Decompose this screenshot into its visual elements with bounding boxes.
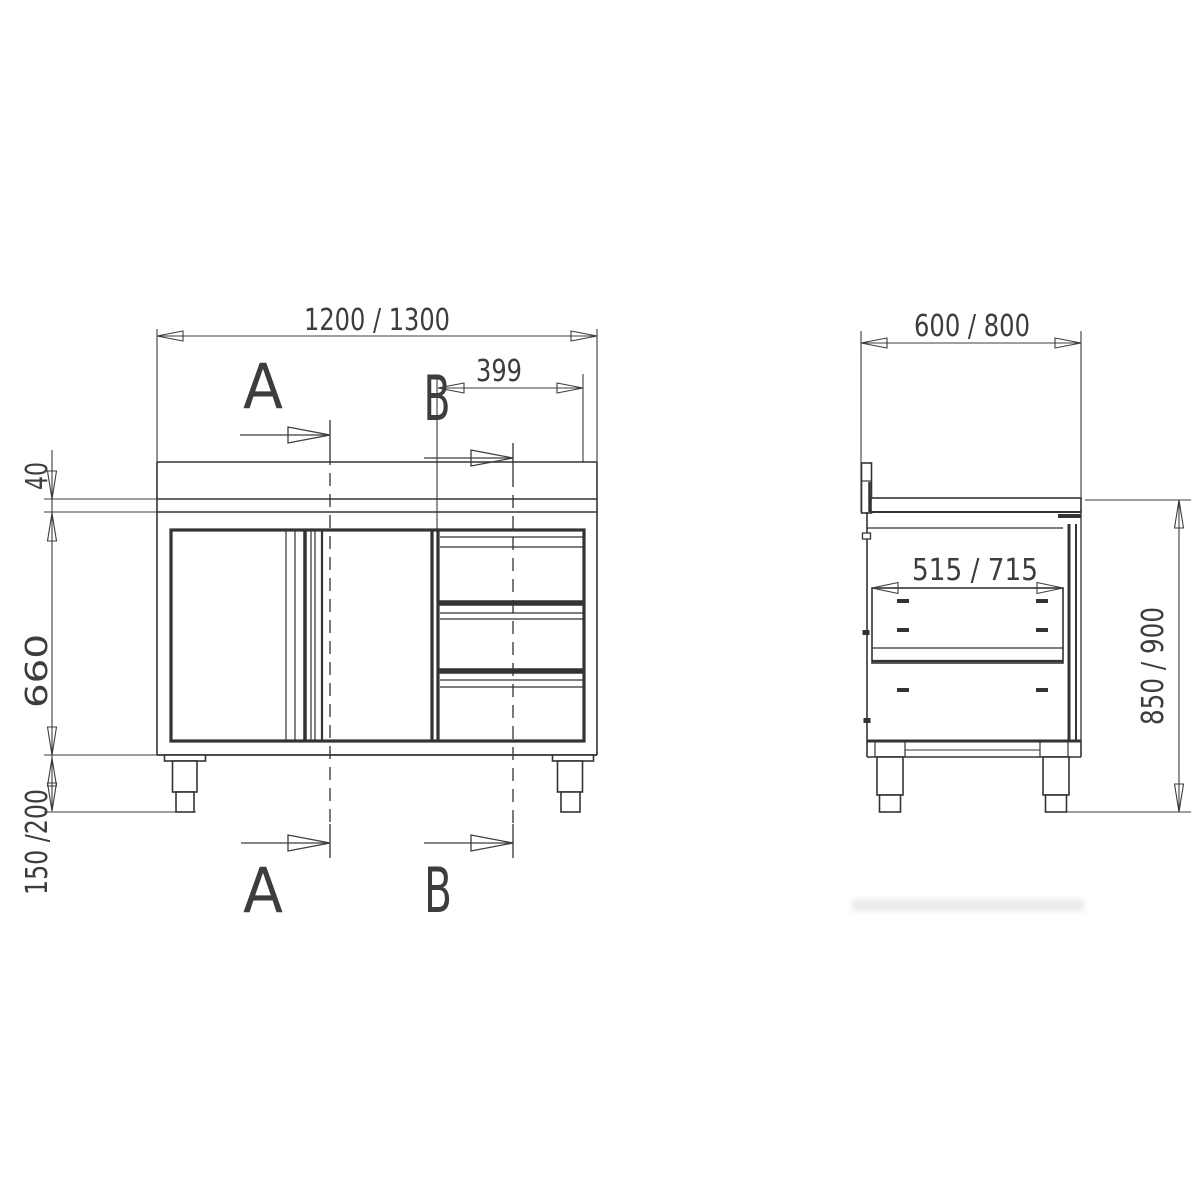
side-drawer-box [872,588,1063,663]
front-leg-left [165,755,206,812]
dim-label-drawer-width: 399 [476,354,522,389]
leg-upper [1043,757,1069,795]
drawer-3 [440,680,583,687]
base-frame [867,741,1081,757]
leg-upper [558,761,583,792]
drawer-2 [440,613,583,619]
hinge-mark [864,718,871,723]
dim-label-overall-height: 850 / 900 [1136,607,1171,725]
section-label-a: A [243,854,283,927]
side-leg-left [877,757,903,812]
leg-foot [176,792,194,812]
cabinet-side-body: 515 / 715 [861,463,1081,812]
side-view: 600 / 800 [852,309,1191,912]
dim-label-depth: 600 / 800 [914,309,1030,344]
watermark-smudge [852,899,1084,912]
leg-upper [173,761,198,792]
section-a-marker-top: A [240,350,330,443]
dim-overall-width: 1200 / 1300 [157,303,597,462]
leg-foot [1046,795,1067,812]
section-label-b: B [424,362,451,435]
sliding-door-left [286,531,305,740]
rear-bracket [863,533,871,539]
hinge-mark [863,630,870,635]
screw-mark [1036,628,1048,632]
cabinet-technical-drawing: 1200 / 1300 399 40 660 150 /200 [0,0,1200,1200]
drawer-1 [440,537,583,547]
sliding-door-right [311,531,432,740]
drawer-stack [438,531,584,741]
section-label-a: A [243,350,283,423]
screw-mark [897,688,909,692]
section-a-marker-bottom: A [241,835,330,927]
screw-mark [897,628,909,632]
leg-upper [877,757,903,795]
cabinet-front-body [157,462,597,812]
leg-flange [553,755,594,761]
leg-foot [880,795,901,812]
section-label-b: B [424,854,452,927]
side-leg-right [1043,757,1069,812]
screw-mark [1036,688,1048,692]
leg-foot [561,792,580,812]
dim-label-leg-height: 150 /200 [20,789,55,895]
dim-overall-depth: 600 / 800 [861,309,1081,512]
screw-mark [897,599,909,603]
leg-flange [165,755,206,761]
screw-mark [1036,599,1048,603]
worktop-profile [871,498,1081,512]
door-opening-frame [171,530,584,741]
dim-label-body-height: 660 [20,634,55,708]
dim-drawer-unit-width: 399 [437,354,583,530]
dim-label-worktop-thickness: 40 [20,462,55,490]
front-view: 1200 / 1300 399 40 660 150 /200 [20,303,597,927]
front-leg-right [553,755,594,812]
section-b-marker-bottom: B [424,835,513,927]
dim-label-inner-depth: 515 / 715 [912,553,1038,588]
dim-label-overall-width: 1200 / 1300 [304,303,450,338]
technical-drawing-page: 1200 / 1300 399 40 660 150 /200 [0,0,1200,1200]
